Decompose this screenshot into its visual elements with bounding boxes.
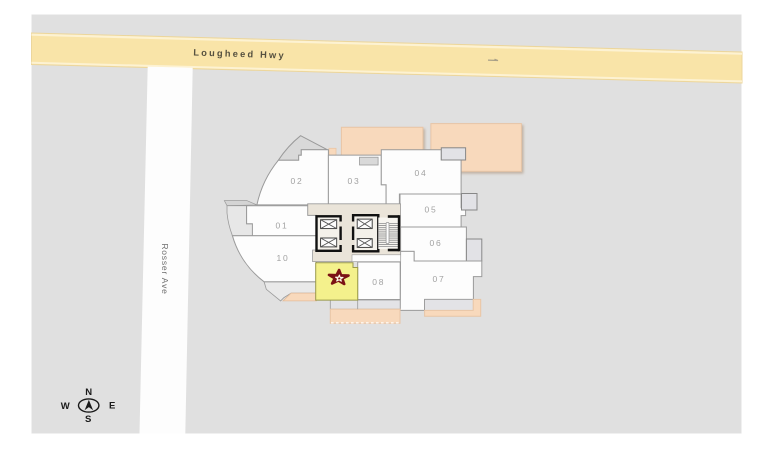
svg-text:04: 04 bbox=[414, 168, 427, 178]
svg-text:Rosser Ave: Rosser Ave bbox=[160, 243, 170, 294]
svg-text:03: 03 bbox=[347, 176, 360, 186]
svg-text:07: 07 bbox=[432, 274, 445, 284]
svg-text:S: S bbox=[85, 414, 91, 425]
svg-text:02: 02 bbox=[290, 176, 303, 186]
svg-text:N: N bbox=[85, 387, 92, 398]
svg-text:06: 06 bbox=[429, 238, 442, 248]
svg-text:01: 01 bbox=[275, 221, 288, 231]
svg-text:08: 08 bbox=[372, 277, 385, 287]
svg-text:10: 10 bbox=[276, 253, 289, 263]
svg-text:E: E bbox=[109, 401, 115, 412]
svg-text:W: W bbox=[61, 401, 70, 412]
svg-text:05: 05 bbox=[424, 205, 437, 215]
